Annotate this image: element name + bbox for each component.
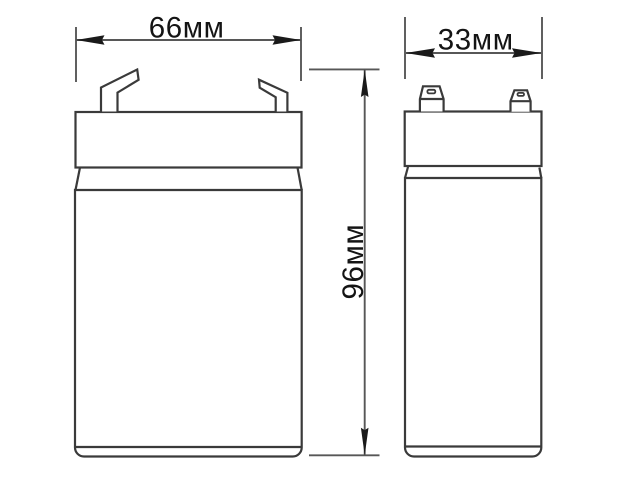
svg-text:33мм: 33мм <box>438 24 514 57</box>
svg-text:66мм: 66мм <box>149 12 225 45</box>
svg-text:96мм: 96мм <box>337 224 370 300</box>
